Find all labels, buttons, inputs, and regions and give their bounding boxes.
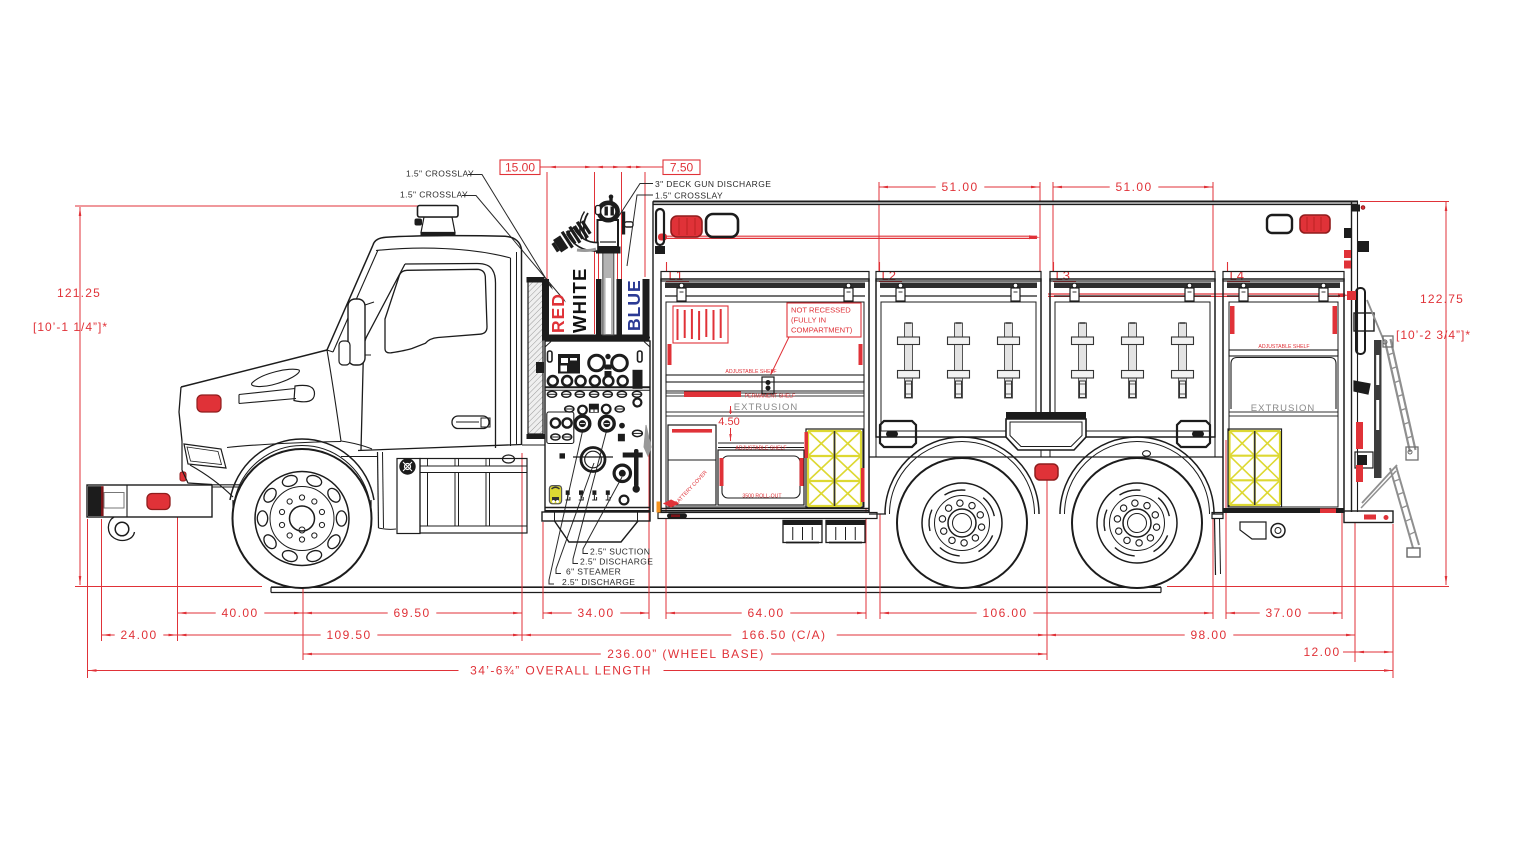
svg-text:69.50: 69.50 [393,606,430,620]
svg-text:ADJUSTABLE SHELF: ADJUSTABLE SHELF [735,446,786,452]
svg-text:COMPARTMENT): COMPARTMENT) [791,326,853,335]
svg-text:51.00: 51.00 [941,180,978,194]
svg-text:[10’-1 1/4”]*: [10’-1 1/4”]* [33,320,108,334]
svg-text:64.00: 64.00 [747,606,784,620]
svg-text:40.00: 40.00 [221,606,258,620]
svg-text:2.5" SUCTION: 2.5" SUCTION [590,547,650,557]
svg-text:ADJUSTABLE SHELF: ADJUSTABLE SHELF [1258,344,1309,350]
svg-text:WHITE: WHITE [569,267,590,333]
svg-text:109.50: 109.50 [326,628,371,642]
svg-text:4.50: 4.50 [718,416,739,428]
svg-text:RED: RED [548,293,568,333]
svg-text:6" STEAMER: 6" STEAMER [566,567,621,577]
svg-text:1.5" CROSSLAY: 1.5" CROSSLAY [655,191,723,201]
svg-text:2.5" DISCHARGE: 2.5" DISCHARGE [580,557,653,567]
svg-text:1.5" CROSSLAY: 1.5" CROSSLAY [406,169,474,179]
svg-text:24.00: 24.00 [120,628,157,642]
svg-text:106.00: 106.00 [982,606,1027,620]
svg-text:166.50 (C/A): 166.50 (C/A) [742,628,827,642]
svg-text:236.00” (WHEEL BASE): 236.00” (WHEEL BASE) [607,647,765,661]
svg-text:3" DECK GUN DISCHARGE: 3" DECK GUN DISCHARGE [655,179,771,189]
svg-text:2.5" DISCHARGE: 2.5" DISCHARGE [562,577,635,587]
svg-text:15.00: 15.00 [505,161,535,175]
svg-text:121.25: 121.25 [57,286,101,300]
svg-text:98.00: 98.00 [1190,628,1227,642]
svg-text:(FULLY IN: (FULLY IN [791,316,826,325]
svg-text:122.75: 122.75 [1420,292,1464,306]
svg-text:BLUE: BLUE [624,279,644,331]
svg-text:34.00: 34.00 [577,606,614,620]
svg-text:PERMANENT SHELF: PERMANENT SHELF [745,394,796,400]
svg-text:3500 ROLL-OUT: 3500 ROLL-OUT [742,494,782,500]
svg-text:12.00: 12.00 [1303,645,1340,659]
svg-text:[10’-2 3/4”]*: [10’-2 3/4”]* [1396,328,1471,342]
svg-text:ADJUSTABLE SHELF: ADJUSTABLE SHELF [725,369,776,375]
svg-text:51.00: 51.00 [1115,180,1152,194]
svg-text:34’-6¾” OVERALL LENGTH: 34’-6¾” OVERALL LENGTH [470,664,652,678]
svg-text:7.50: 7.50 [670,161,694,175]
svg-text:1.5" CROSSLAY: 1.5" CROSSLAY [400,190,468,200]
svg-text:EXTRUSION: EXTRUSION [734,402,798,413]
svg-text:37.00: 37.00 [1265,606,1302,620]
svg-text:NOT RECESSED: NOT RECESSED [791,306,851,315]
